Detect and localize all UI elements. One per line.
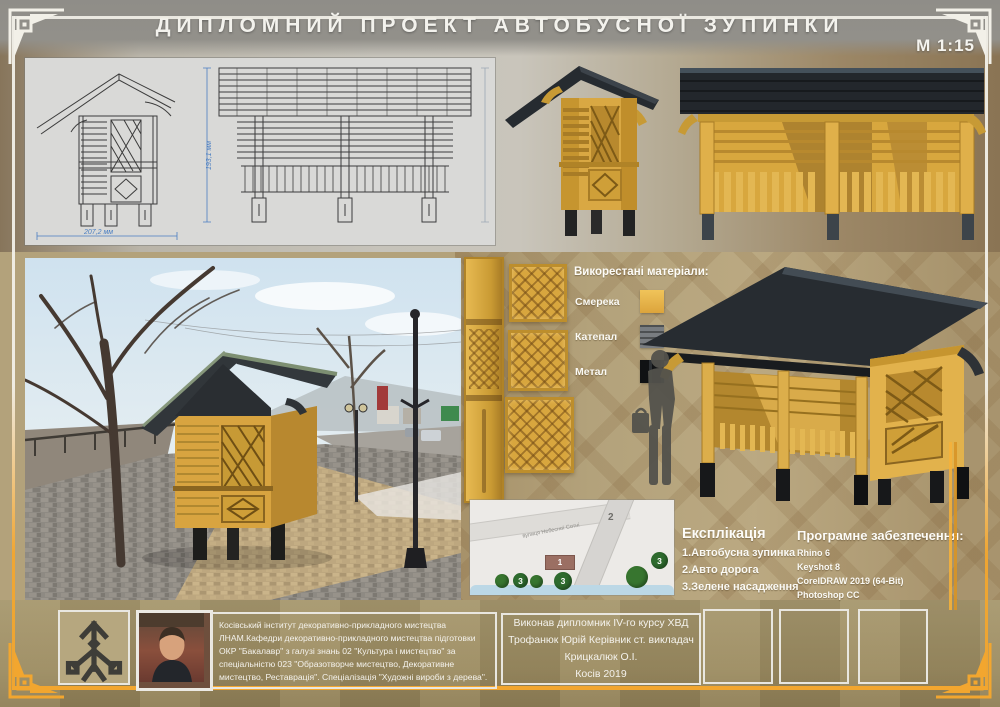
- trident-ornament-icon: [60, 612, 128, 683]
- frame-line-left: [12, 16, 15, 688]
- map-tree: [495, 574, 509, 588]
- explication-heading: Експлікація: [682, 526, 766, 542]
- render-front-view: [672, 60, 992, 243]
- institute-description: Косівський інститут декоративно-прикладн…: [211, 612, 497, 689]
- gold-divider: [949, 442, 957, 610]
- carved-panel-detail: [508, 330, 568, 391]
- render-side-view: [503, 58, 665, 243]
- render-perspective-view: [630, 255, 995, 505]
- footer-empty-box: [779, 609, 849, 684]
- software-item: Keyshot 8: [797, 562, 840, 572]
- author-portrait: [136, 610, 213, 691]
- map-marker-green: 3: [513, 573, 528, 588]
- explication-item: 2.Авто дорога: [682, 564, 759, 576]
- carved-post-detail: [464, 257, 504, 503]
- author-line: Крицкалюк О.І.: [503, 649, 699, 666]
- footer-empty-box: [703, 609, 773, 684]
- map-tree: [530, 575, 543, 588]
- front-elevation-drawing: 193,1 мм: [197, 58, 493, 245]
- author-line: Косів 2019: [503, 666, 699, 683]
- map-tree: [626, 566, 648, 588]
- human-silhouette: [632, 350, 675, 485]
- carved-panel-detail: [505, 397, 574, 473]
- explication-item: 1.Автобусна зупинка: [682, 547, 795, 559]
- software-heading: Програмне забезпечення:: [797, 528, 964, 543]
- corner-ornament-icon: [6, 6, 64, 64]
- site-plan-map: вулиця Небесної Сотні 2 1 3 3 3: [470, 500, 674, 595]
- author-credits: Виконав дипломник IV-го курсу ХВД Трофан…: [501, 613, 701, 685]
- technical-drawings-panel: 207,2 мм 193,1 мм: [25, 58, 495, 245]
- explication-item: 3.Зелене насадження: [682, 581, 799, 593]
- site-photo: [25, 258, 461, 600]
- material-name: Катепал: [575, 331, 617, 343]
- corner-ornament-icon: [6, 643, 64, 701]
- dimension-height-label: 193,1 мм: [206, 141, 213, 170]
- institute-logo: [58, 610, 130, 685]
- map-marker-green: 3: [554, 572, 572, 590]
- footer-empty-box: [858, 609, 928, 684]
- material-name: Смерека: [575, 296, 620, 308]
- corner-ornament-icon: [936, 643, 994, 701]
- author-line: Трофанюк Юрій Керівник ст. викладач: [503, 632, 699, 649]
- diploma-poster: ДИПЛОМНИЙ ПРОЕКТ АВТОБУСНОЇ ЗУПИНКИ М 1:…: [0, 0, 1000, 707]
- map-marker-green: 3: [651, 552, 668, 569]
- software-item: CorelDRAW 2019 (64-Bit): [797, 576, 904, 586]
- software-item: Photoshop CC: [797, 590, 860, 600]
- material-name: Метал: [575, 366, 607, 378]
- map-marker-road: 2: [608, 512, 614, 523]
- author-line: Виконав дипломник IV-го курсу ХВД: [503, 615, 699, 632]
- dimension-width-label: 207,2 мм: [83, 229, 113, 236]
- side-elevation-drawing: 207,2 мм: [27, 58, 197, 245]
- map-marker-bus-stop: 1: [546, 556, 574, 569]
- carved-panel-detail: [509, 264, 567, 322]
- corner-ornament-icon: [936, 6, 994, 64]
- frame-line-top: [14, 16, 986, 19]
- software-item: Rhino 6: [797, 548, 830, 558]
